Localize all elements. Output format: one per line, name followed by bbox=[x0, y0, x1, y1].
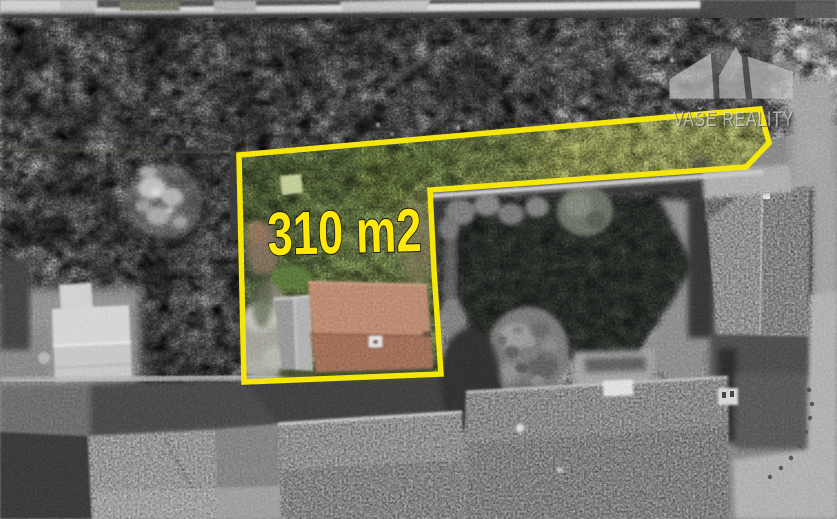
svg-text:VAŠE REALITY: VAŠE REALITY bbox=[673, 106, 794, 130]
svg-text:310 m2: 310 m2 bbox=[267, 197, 423, 269]
